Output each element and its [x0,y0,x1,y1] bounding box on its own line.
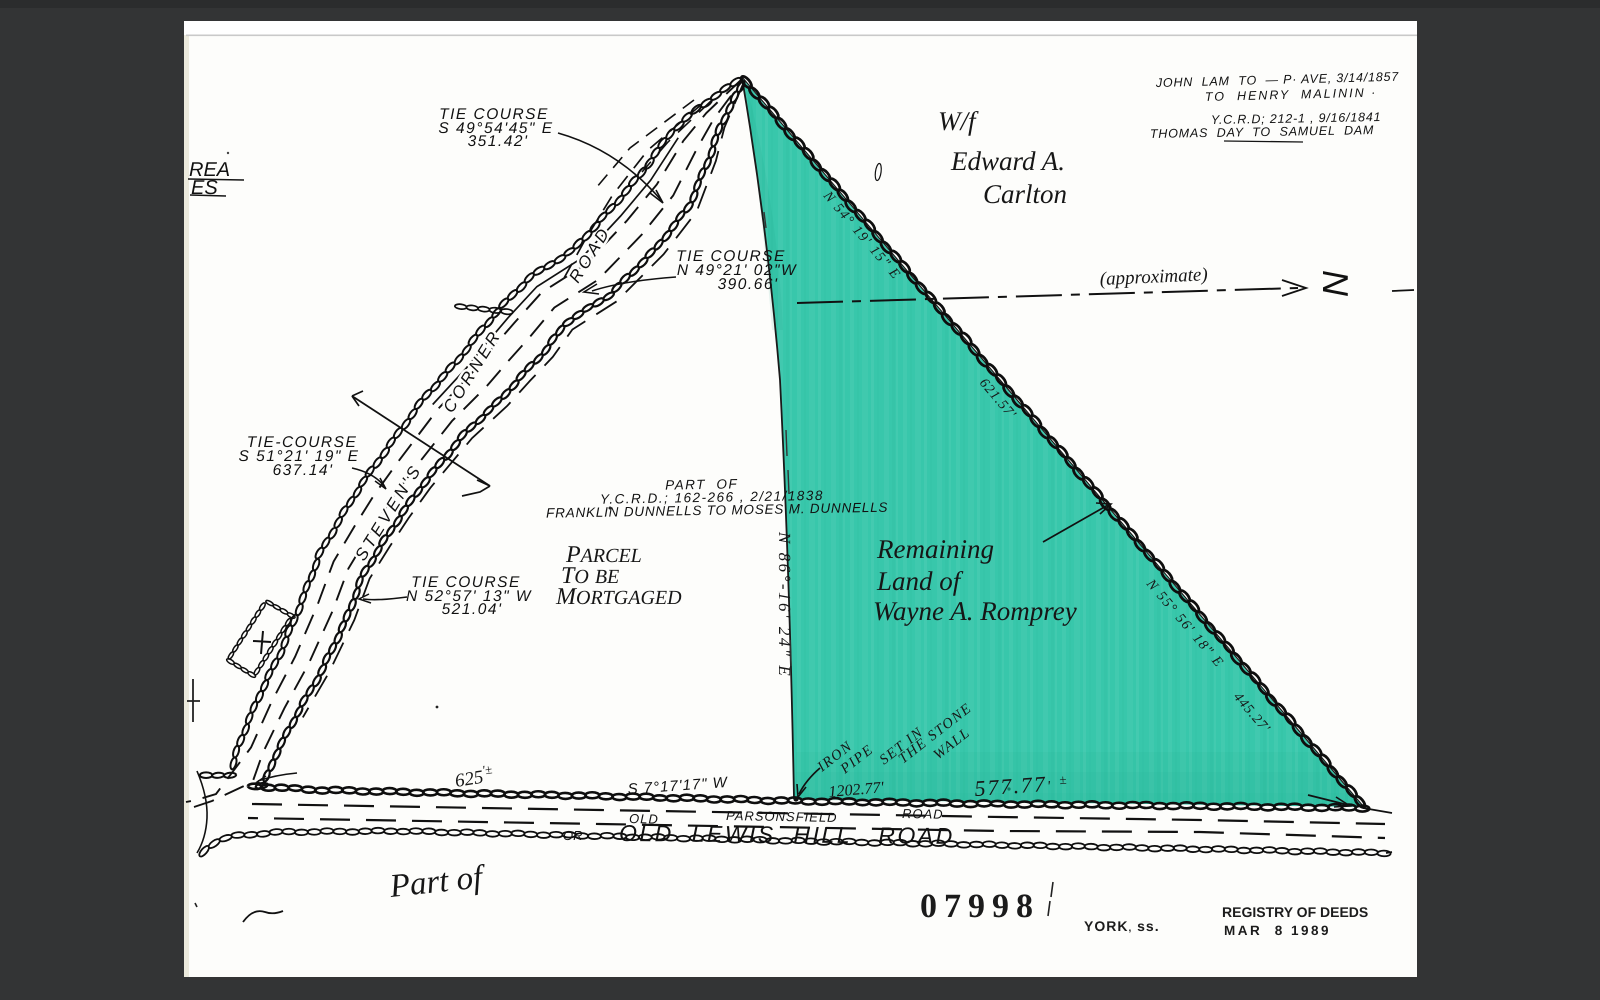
svg-text:N 86°-16' 24" E: N 86°-16' 24" E [775,531,794,678]
svg-text:MORTGAGED: MORTGAGED [555,584,682,610]
svg-text:390.66': 390.66' [718,276,779,293]
svg-text:ROAD: ROAD [902,806,944,822]
svg-text:Land of: Land of [876,566,964,596]
svg-text:Edward A.: Edward A. [950,146,1065,176]
svg-text:N: N [1315,270,1356,297]
svg-text:351.42': 351.42' [468,133,529,150]
svg-text:Remaining: Remaining [876,534,994,564]
svg-text:MAR 8 1989: MAR 8 1989 [1224,923,1331,938]
svg-text:OLD LEWIS HILL ROAD: OLD LEWIS HILL ROAD [619,820,955,849]
svg-text:637.14': 637.14' [273,462,334,479]
svg-text:YORK, ss.: YORK, ss. [1084,918,1160,934]
svg-text:W/f: W/f [938,106,979,136]
svg-text:REGISTRY OF DEEDS: REGISTRY OF DEEDS [1222,904,1368,920]
svg-text:Wayne A. Romprey: Wayne A. Romprey [873,596,1077,626]
svg-text:Carlton: Carlton [983,179,1067,209]
svg-text:PARCEL: PARCEL [565,542,642,568]
svg-text:521.04': 521.04' [442,601,503,618]
svg-text:07998: 07998 [920,888,1040,925]
svg-text:OR: OR [563,828,583,843]
